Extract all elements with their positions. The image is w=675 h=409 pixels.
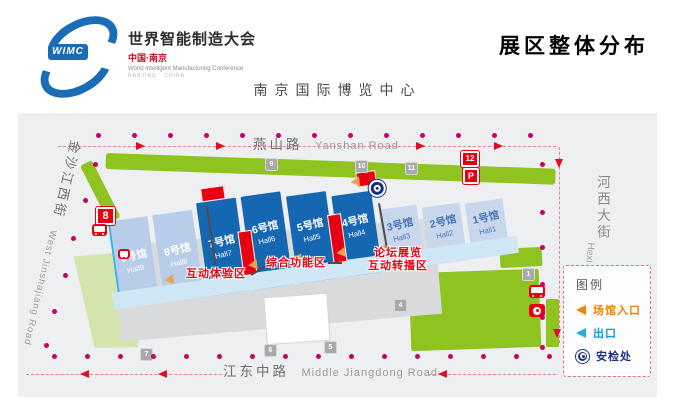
route-dot (349, 354, 354, 359)
bus-station-icon (92, 224, 107, 236)
route-dot (384, 133, 389, 138)
route-arrow-left-icon (158, 370, 167, 378)
expo-map: 9号馆 Hall9 8号馆 Hall8 7号馆 Hall7 6号馆 Hall6 … (18, 113, 657, 397)
route-dot (71, 236, 76, 241)
exit-arrow-icon (576, 328, 586, 338)
forum-zone-line2: 互动转播区 (356, 260, 440, 273)
route-dot (118, 354, 123, 359)
route-arrow-left-icon (438, 370, 447, 378)
route-line-south-east (428, 374, 556, 375)
road-north-cn: 燕山路 (253, 137, 303, 152)
route-dot (540, 345, 545, 350)
entrance-arrow-icon (248, 259, 258, 270)
entrance-arrow-icon (336, 247, 346, 258)
road-east-cn: 河西大街 (592, 175, 612, 241)
route-dot (132, 133, 137, 138)
route-dot (492, 133, 497, 138)
route-dot (44, 343, 49, 348)
legend-exit-label: 出口 (593, 325, 617, 341)
entrance-arrow-icon (576, 305, 586, 315)
route-dot (240, 133, 245, 138)
functional-zone-label: 综合功能区 (266, 254, 326, 270)
road-west-cn: 金沙江西街 (50, 139, 83, 220)
venue-title: 南京国际博览中心 (0, 80, 675, 100)
logo-acronym: WIMC (48, 44, 88, 60)
legend-security-label: 安检处 (596, 348, 632, 364)
road-south-cn: 江东中路 (223, 364, 289, 379)
map-legend: 图例 场馆入口 出口 安检处 (563, 265, 651, 377)
logo-subtitle-en2: NANJING · CHINA (128, 73, 318, 79)
road-north-en: Yanshan Road (315, 140, 399, 152)
route-dot (540, 315, 545, 320)
legend-item-exit: 出口 (576, 326, 650, 340)
gate-11-badge: 11 (405, 162, 418, 175)
route-dot (250, 354, 255, 359)
entrance-arrow-icon (350, 176, 360, 187)
route-dot (168, 133, 173, 138)
parking-badge: P (463, 168, 479, 184)
page-title: 展区整体分布 (499, 30, 649, 60)
forum-zone-label: 论坛展览 互动转播区 (356, 247, 440, 273)
route-arrow-right-icon (216, 142, 225, 150)
route-dot (540, 245, 545, 250)
logo-subtitle-en: World Intelligent Manufacturing Conferen… (128, 66, 318, 72)
route-dot (415, 354, 420, 359)
transport-stop-icon (118, 249, 130, 259)
route-dot (540, 282, 545, 287)
route-dot (184, 354, 189, 359)
route-arrow-down-icon (553, 329, 561, 338)
road-west-en: West Jinshajiang Road (21, 229, 58, 346)
route-dot (312, 133, 317, 138)
route-dot (382, 354, 387, 359)
route-dot (204, 133, 209, 138)
route-arrow-down-icon (555, 159, 563, 168)
interactive-zone-label: 互动体验区 (186, 265, 246, 281)
route-dot (283, 354, 288, 359)
route-dot (52, 354, 57, 359)
entrance-arrow-icon (164, 274, 174, 285)
route-line-south-west (26, 374, 222, 375)
route-dot (540, 162, 545, 167)
gate-4-badge: 4 (394, 299, 407, 312)
route-dot (217, 354, 222, 359)
road-south-en: Middle Jiangdong Road (301, 367, 438, 379)
route-arrow-right-icon (494, 142, 503, 150)
route-dot (52, 309, 57, 314)
gate-5-badge: 5 (324, 341, 337, 354)
logo-location: 中国·南京 (128, 51, 318, 64)
route-dot (63, 273, 68, 278)
security-check-icon (576, 350, 589, 363)
logo-text-block: 世界智能制造大会 中国·南京 World Intelligent Manufac… (128, 28, 318, 79)
gate-1-badge: 1 (522, 268, 535, 281)
wimc-logo: WIMC (34, 20, 122, 82)
route-dot (93, 162, 98, 167)
route-dot (481, 354, 486, 359)
route-dot (151, 354, 156, 359)
road-south-label: 江东中路 Middle Jiangdong Road (223, 360, 438, 381)
route-dot (420, 133, 425, 138)
legend-title: 图例 (576, 276, 650, 293)
gate-10-badge: 10 (355, 160, 368, 173)
route-dot (276, 133, 281, 138)
leader-line (328, 262, 342, 264)
route-dot (540, 210, 545, 215)
south-building (263, 293, 330, 345)
gate-9-badge: 9 (265, 158, 278, 171)
route-arrow-right-icon (136, 142, 145, 150)
road-west-label: 金沙江西街 West Jinshajiang Road (19, 139, 86, 349)
route-dot (528, 133, 533, 138)
route-dot (96, 133, 101, 138)
route-dot (85, 354, 90, 359)
route-dot (316, 354, 321, 359)
gate-12-badge: 12 (461, 151, 479, 167)
route-line-east (559, 147, 560, 343)
road-north-label: 燕山路 Yanshan Road (253, 133, 399, 154)
legend-item-entrance: 场馆入口 (576, 303, 650, 317)
route-dot (448, 354, 453, 359)
forum-zone-line1: 论坛展览 (356, 247, 440, 260)
route-arrow-right-icon (416, 142, 425, 150)
route-dot (547, 354, 552, 359)
gate-8-badge: 8 (96, 207, 115, 225)
route-arrow-left-icon (80, 370, 89, 378)
legend-entrance-label: 场馆入口 (593, 302, 641, 318)
gate-6-badge: 6 (264, 344, 277, 357)
logo-title: 世界智能制造大会 (128, 28, 318, 49)
lawn-east-strip (546, 299, 559, 347)
route-dot (514, 354, 519, 359)
route-dot (83, 198, 88, 203)
legend-item-security: 安检处 (576, 349, 650, 363)
route-dot (348, 133, 353, 138)
route-dot (456, 133, 461, 138)
